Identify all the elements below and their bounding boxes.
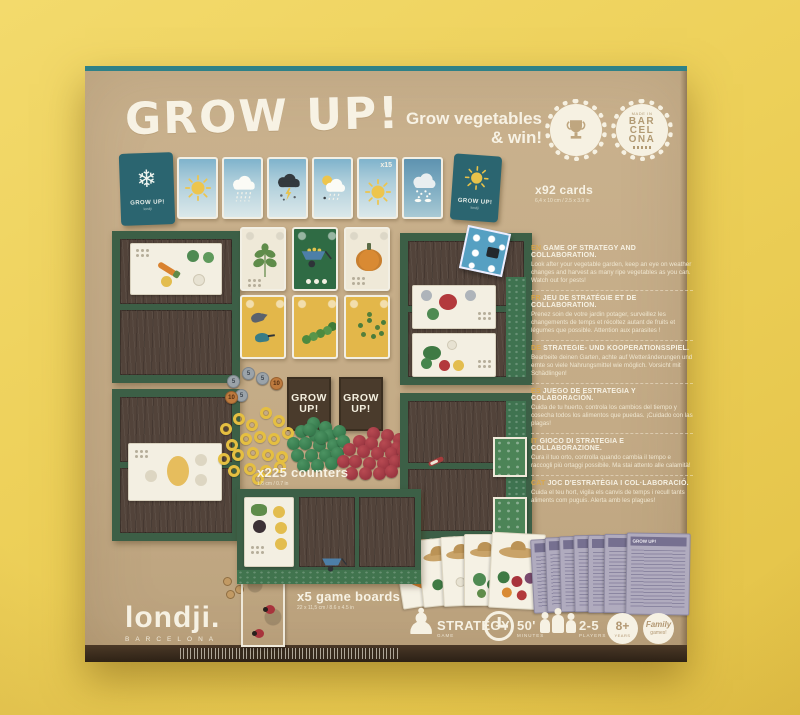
wheelbarrow-icon <box>319 555 349 573</box>
coin-illustration <box>465 290 476 301</box>
badge-squiggle <box>633 146 651 149</box>
card-birds <box>240 295 286 359</box>
lang-tag: IT <box>531 438 538 445</box>
weather-card-rain <box>222 157 263 219</box>
age-label: 8+ <box>616 620 630 632</box>
onion-illustration <box>161 276 172 287</box>
rulebooks-fan: GROW UP! <box>532 533 694 619</box>
greens-illustration <box>421 358 432 369</box>
made-in-label: MADE IN <box>632 111 653 116</box>
caterpillar-illustration <box>302 335 311 344</box>
cards-count-label: x92 cards <box>535 183 593 197</box>
lang-heading: JEU DE STRATÉGIE ET DE COLLABORATION. <box>531 295 636 309</box>
coin-illustration <box>421 290 432 301</box>
pip-dots <box>136 249 139 252</box>
players-icon <box>540 609 580 639</box>
pepper-illustration <box>439 294 457 310</box>
mini-weather-chart-card <box>459 225 511 277</box>
weather-card-sun <box>177 157 218 219</box>
vegetable-card-radish <box>244 497 294 567</box>
weather-card-heavy-rain <box>402 157 443 219</box>
lang-body: Look after your vegetable garden, keep a… <box>531 261 693 286</box>
lang-heading: JUEGO DE ESTRATEGIA Y COLABORACIÓN. <box>531 388 636 402</box>
lang-heading: JOC D'ESTRATÈGIA I COL·LABORACIÓ. <box>547 480 688 487</box>
coin: 10 <box>270 377 283 390</box>
sun-icon <box>365 179 391 205</box>
lang-block-de: DESTRATEGIE- UND KOOPERATIONSSPIEL. Bear… <box>531 340 693 378</box>
cabbage-illustration <box>203 252 214 263</box>
clock-icon <box>484 611 514 641</box>
card-herb <box>240 227 286 291</box>
ladybug-icon <box>254 629 264 638</box>
lang-tag: DE <box>531 345 541 352</box>
spec-players-sub: PLAYERS <box>579 633 606 638</box>
ring-counter <box>246 419 258 431</box>
pip-dots <box>306 279 311 284</box>
ring-counter <box>233 413 245 425</box>
barcelona-badge: MADE IN BAR CEL ONA <box>616 104 668 156</box>
bird-illustration <box>254 332 269 343</box>
pip-dots <box>135 450 138 453</box>
chart-dark-cell <box>486 247 500 259</box>
vegetable-card-pepper <box>412 285 496 329</box>
language-descriptions: ENGAME OF STRATEGY AND COLLABORATION. Lo… <box>531 241 693 510</box>
boards-count-label: x5 game boards <box>297 589 400 604</box>
barcelona-line2: CEL <box>630 126 655 135</box>
photo-background: GROW UP! Grow vegetables & win! MADE IN … <box>0 0 800 715</box>
ring-counter <box>218 453 230 465</box>
carrot-illustration <box>157 261 177 277</box>
pumpkin-illustration <box>356 249 382 271</box>
ring-counter <box>247 447 259 459</box>
coin-illustration <box>275 522 287 534</box>
ring-counter <box>240 433 252 445</box>
rulebook-title: GROW UP! <box>633 539 657 544</box>
deck-back-brand: londji <box>144 207 152 211</box>
seeds-illustration <box>358 323 363 328</box>
coin: 5 <box>242 367 255 380</box>
lang-block-it: ITGIOCO DI STRATEGIA E COLLABORAZIONE. C… <box>531 433 693 470</box>
heavy-rain-icon <box>408 170 438 206</box>
card-caterpillar <box>292 295 338 359</box>
lang-tag: EN <box>531 245 541 252</box>
brand-city: BARCELONA <box>125 636 220 643</box>
boards-count: x5 game boards 22 x 11,5 cm / 8.6 x 4.5 … <box>297 589 400 611</box>
pawn-icon: ♟ <box>405 605 437 641</box>
brand-logo: londji. <box>125 603 220 633</box>
ring-counter <box>260 407 272 419</box>
weather-card-sun-rain <box>312 157 353 219</box>
tomato-illustration <box>439 360 450 371</box>
red-counter <box>385 465 398 478</box>
green-counter <box>315 431 328 444</box>
spec-players: 2-5 PLAYERS <box>579 619 606 638</box>
card-seeds <box>344 295 390 359</box>
deck-back-title: GROW UP! <box>130 199 165 206</box>
sun-rain-icon <box>318 170 348 206</box>
pip-dots <box>478 360 481 363</box>
spec-players-label: 2-5 <box>579 619 606 632</box>
age-sub: YEARS <box>614 633 630 638</box>
pip-dots <box>478 312 481 315</box>
grass-strip <box>506 277 526 377</box>
coin: 5 <box>227 375 240 388</box>
lang-body: Cura il tuo orto, controlla quando cambi… <box>531 454 693 470</box>
weather-deck-back: ❄ GROW UP! londji <box>119 152 175 226</box>
game-box-back: GROW UP! Grow vegetables & win! MADE IN … <box>85 66 687 662</box>
lang-heading: GIOCO DI STRATEGIA E COLLABORAZIONE. <box>531 438 624 452</box>
vegetable-dot <box>516 590 527 601</box>
weather-deck-back-sun: GROW UP! londji <box>450 153 502 222</box>
vegetable-card-carrot <box>130 243 222 295</box>
green-counter <box>303 423 316 436</box>
coin: 5 <box>256 372 269 385</box>
ring-counter <box>232 449 244 461</box>
vegetable-dot <box>511 576 523 588</box>
tagline-line2: & win! <box>370 128 542 147</box>
counters-count: x225 counters 1,8 cm / 0.7 in <box>257 465 348 487</box>
grass-card <box>493 437 527 477</box>
tagline-line1: Grow vegetables <box>370 109 542 128</box>
deck-back-title: GROW UP! <box>458 198 493 206</box>
person-icon <box>552 615 564 633</box>
pip-circle <box>195 454 207 466</box>
potato-illustration <box>167 456 189 486</box>
cabbage-illustration <box>427 308 439 320</box>
ladybug-icon <box>265 605 275 614</box>
lang-heading: STRATEGIE- UND KOOPERATIONSSPIEL. <box>543 345 689 352</box>
trophy-icon <box>561 115 591 145</box>
lang-tag: FR <box>531 295 541 302</box>
lang-heading: GAME OF STRATEGY AND COLLABORATION. <box>531 245 636 259</box>
multiplier-label: x15 <box>380 162 392 169</box>
sun-icon <box>464 165 490 191</box>
family-badge-line1: Family <box>646 621 671 629</box>
lang-block-cat: CATJOC D'ESTRATÈGIA I COL·LABORACIÓ. Cui… <box>531 475 693 505</box>
lang-tag: CAT <box>531 480 545 487</box>
wheelbarrow-icon <box>299 247 333 269</box>
card-pumpkin <box>344 227 390 291</box>
trophy-badge <box>550 104 602 156</box>
family-badge-line2: games! <box>650 630 666 636</box>
lang-body: Cuida el teu hort, vigila els canvis de … <box>531 489 693 505</box>
rain-cloud-icon <box>228 171 258 205</box>
ring-counter <box>268 433 280 445</box>
barcode <box>180 648 398 659</box>
turnip-illustration <box>193 274 205 286</box>
cards-count: x92 cards 6,4 x 10 cm / 2.5 x 3.9 in <box>535 183 593 204</box>
pip-dots <box>251 546 254 549</box>
vegetable-dot <box>473 573 486 586</box>
lang-body: Prenez soin de votre jardin potager, sur… <box>531 311 693 336</box>
pip-circle <box>447 340 457 350</box>
ring-counter <box>273 415 285 427</box>
lang-block-fr: FRJEU DE STRATÉGIE ET DE COLLABORATION. … <box>531 290 693 335</box>
wood-counter <box>223 577 232 586</box>
greens-illustration <box>251 504 267 516</box>
weather-card-sun-x15: x15 <box>357 157 398 219</box>
game-board-bottom-center <box>237 489 421 584</box>
deck-box-label: GROW UP! <box>343 393 379 415</box>
radish-illustration <box>253 520 266 533</box>
vegetable-card-greens <box>412 333 496 377</box>
counters-count-dims: 1,8 cm / 0.7 in <box>257 481 348 487</box>
game-title: GROW UP! <box>124 88 400 145</box>
ring-counter <box>254 431 266 443</box>
vegetable-dot <box>502 587 513 598</box>
lemon-illustration <box>453 360 464 371</box>
person-icon <box>540 619 550 633</box>
coin-illustration <box>275 538 287 550</box>
counters-count-label: x225 counters <box>257 465 348 480</box>
cabbage-illustration <box>187 250 199 262</box>
red-counter <box>359 467 372 480</box>
lang-block-en: ENGAME OF STRATEGY AND COLLABORATION. Lo… <box>531 241 693 285</box>
wood-counter <box>226 590 235 599</box>
lang-block-es: ESJUEGO DE ESTRATEGIA Y COLABORACIÓN. Cu… <box>531 383 693 428</box>
tagline: Grow vegetables & win! <box>370 109 542 147</box>
lang-body: Bearbeite deinen Garten, achte auf Wette… <box>531 354 693 379</box>
rulebook-top: GROW UP! <box>625 532 690 615</box>
coin: 10 <box>225 391 238 404</box>
soil-plot <box>120 310 232 375</box>
vegetable-dot <box>497 571 510 584</box>
family-games-badge: Family games! <box>643 613 674 644</box>
barcelona-line3: ONA <box>629 135 656 144</box>
vegetable-card-potato <box>128 443 222 501</box>
box-bottom-edge <box>85 645 687 662</box>
ring-counter <box>228 465 240 477</box>
coin-illustration <box>273 506 285 518</box>
age-badge: 8+ YEARS <box>607 613 638 644</box>
brand-block: londji. BARCELONA <box>125 603 220 643</box>
vegetable-dot <box>477 589 486 598</box>
pip-dots <box>352 277 355 280</box>
boards-count-dims: 22 x 11,5 cm / 8.6 x 4.5 in <box>297 605 400 611</box>
ring-counter <box>262 449 274 461</box>
ring-counter <box>220 423 232 435</box>
pip-circle <box>145 470 157 482</box>
game-board-top-left <box>112 231 240 383</box>
bird-illustration <box>250 311 265 324</box>
snowflake-icon: ❄ <box>136 167 157 192</box>
cards-count-dims: 6,4 x 10 cm / 2.5 x 3.9 in <box>535 198 593 204</box>
deck-back-brand: londji <box>470 206 478 211</box>
sun-icon <box>185 175 211 201</box>
herb-leaf-icon <box>249 241 281 281</box>
weather-card-storm <box>267 157 308 219</box>
lang-body: Cuida de tu huerto, controla los cambios… <box>531 404 693 429</box>
storm-cloud-icon <box>273 170 303 206</box>
soil-plot <box>359 497 415 567</box>
pip-dots <box>248 279 251 282</box>
red-counter <box>373 467 386 480</box>
barcelona-line1: BAR <box>629 117 655 126</box>
pip-circle <box>195 474 207 486</box>
card-wheelbarrow <box>292 227 338 291</box>
person-icon <box>566 620 576 633</box>
